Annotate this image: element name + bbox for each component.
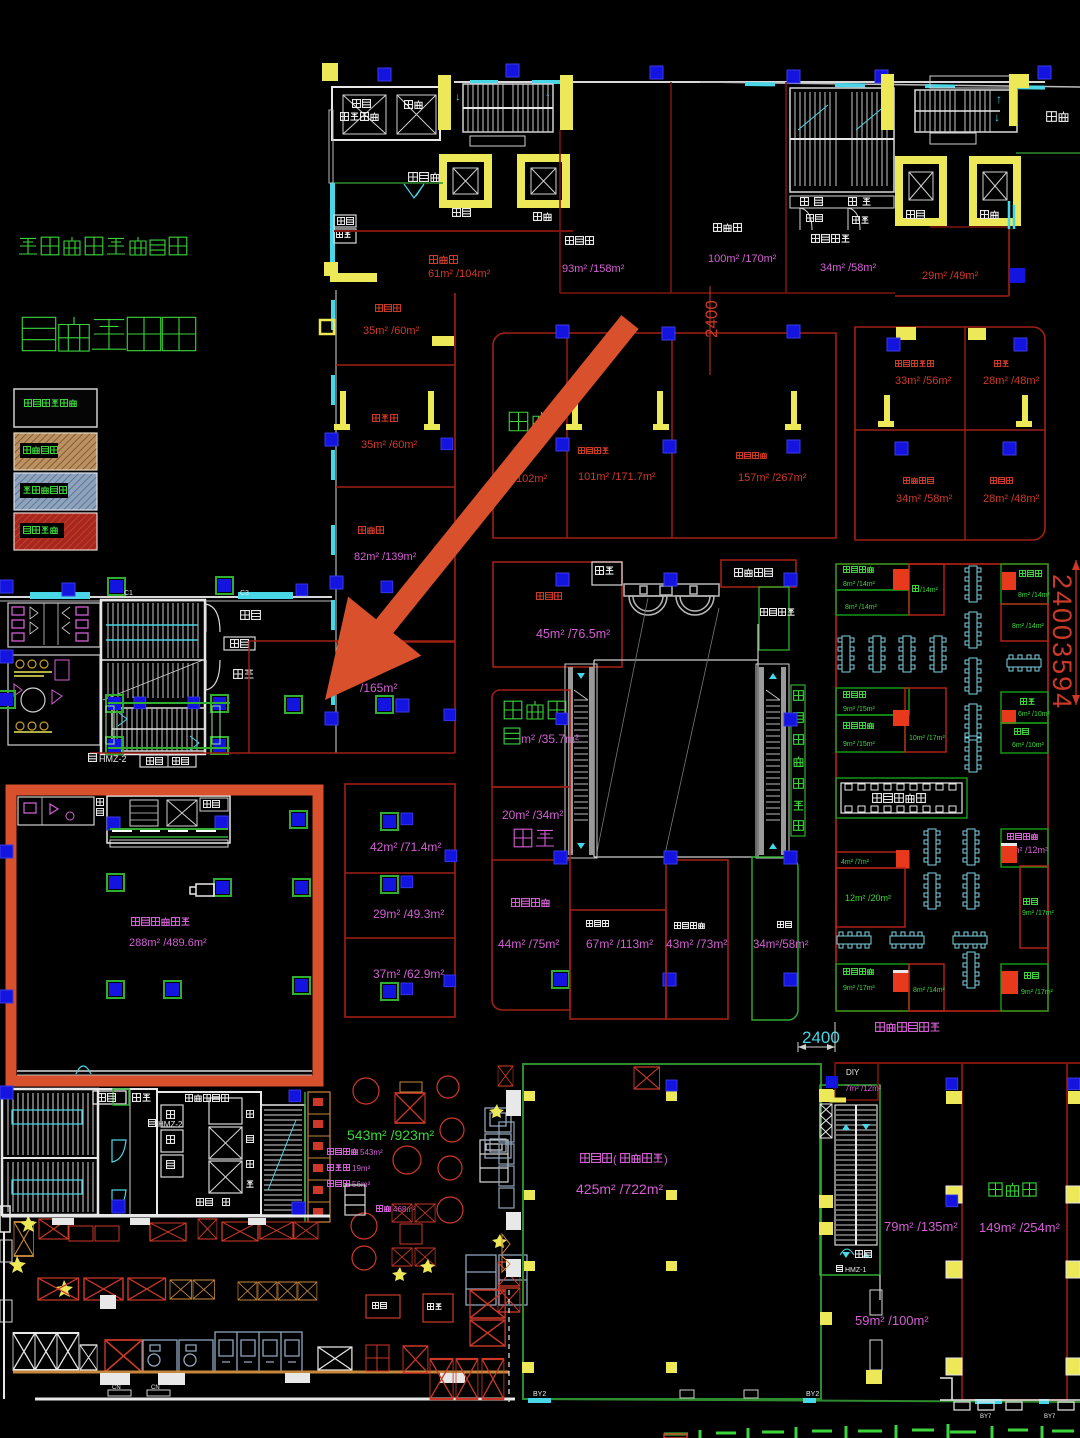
- svg-text:34m² /58m²: 34m² /58m²: [820, 262, 877, 274]
- svg-text:↑: ↑: [996, 92, 1002, 106]
- svg-text:6m² /10m²: 6m² /10m²: [1018, 711, 1051, 718]
- svg-text:9m² /17m²: 9m² /17m²: [1021, 989, 1054, 996]
- svg-text:24003594: 24003594: [1047, 574, 1077, 710]
- svg-text:42m² /71.4m²: 42m² /71.4m²: [370, 840, 441, 854]
- svg-text:HMZ-2: HMZ-2: [158, 1120, 183, 1129]
- svg-text:100m² /170m²: 100m² /170m²: [708, 253, 777, 265]
- svg-text:67m² /113m²: 67m² /113m²: [586, 937, 653, 951]
- svg-text:288m² /489.6m²: 288m² /489.6m²: [129, 937, 207, 949]
- svg-text:8m² /14m²: 8m² /14m²: [913, 987, 946, 994]
- svg-text:DIY: DIY: [846, 1068, 860, 1077]
- svg-text:8m² /14m²: 8m² /14m²: [1018, 592, 1051, 599]
- svg-text:61m² /104m²: 61m² /104m²: [428, 268, 491, 280]
- svg-text:28m² /48m²: 28m² /48m²: [983, 493, 1040, 505]
- svg-text:/165m²: /165m²: [360, 681, 397, 695]
- svg-text:HMZ-2: HMZ-2: [99, 754, 127, 764]
- svg-text:↓: ↓: [994, 110, 1000, 124]
- svg-text:BY2: BY2: [533, 1391, 546, 1398]
- svg-text:4m² /7m²: 4m² /7m²: [841, 859, 870, 866]
- svg-text:2400: 2400: [702, 300, 721, 338]
- svg-text:37m² /62.9m²: 37m² /62.9m²: [373, 967, 444, 981]
- svg-text:157m² /267m²: 157m² /267m²: [738, 472, 807, 484]
- svg-text:543m²: 543m²: [360, 1148, 383, 1157]
- svg-text:8m² /14m²: 8m² /14m²: [1012, 623, 1045, 630]
- svg-text:59m² /100m²: 59m² /100m²: [855, 1313, 929, 1328]
- svg-text:28m² /48m²: 28m² /48m²: [983, 375, 1040, 387]
- svg-text:↑: ↑: [545, 91, 551, 103]
- svg-text:35m² /60m²: 35m² /60m²: [363, 325, 420, 337]
- svg-text:): ): [664, 1154, 668, 1166]
- svg-text:149m² /254m²: 149m² /254m²: [979, 1220, 1061, 1235]
- svg-text:45m² /76.5m²: 45m² /76.5m²: [536, 627, 610, 641]
- svg-text:BY2: BY2: [806, 1391, 819, 1398]
- svg-text:101m² /171.7m²: 101m² /171.7m²: [578, 471, 656, 483]
- svg-text:35m² /60m²: 35m² /60m²: [361, 439, 418, 451]
- svg-text:↓: ↓: [455, 91, 461, 103]
- svg-text:34m² /58m²: 34m² /58m²: [896, 493, 953, 505]
- svg-text:8m² /14m²: 8m² /14m²: [845, 604, 878, 611]
- svg-text:CN: CN: [112, 1385, 121, 1391]
- svg-text:C3: C3: [240, 590, 249, 597]
- svg-text:468m²: 468m²: [393, 1205, 416, 1214]
- svg-text:43m² /73m²: 43m² /73m²: [666, 937, 727, 951]
- svg-text:/14m²: /14m²: [920, 587, 939, 594]
- svg-text:425m² /722m²: 425m² /722m²: [576, 1181, 663, 1197]
- svg-text:m² /35.7m²: m² /35.7m²: [521, 732, 579, 746]
- svg-text:34m²/58m²: 34m²/58m²: [753, 939, 809, 951]
- svg-text:79m² /135m²: 79m² /135m²: [884, 1219, 958, 1234]
- svg-text:BY7: BY7: [1044, 1414, 1056, 1420]
- svg-text:9m² /17m²: 9m² /17m²: [1022, 910, 1055, 917]
- svg-text:8m² /14m²: 8m² /14m²: [843, 581, 876, 588]
- svg-text:29m² /49m²: 29m² /49m²: [922, 270, 979, 282]
- svg-text:BY7: BY7: [980, 1414, 992, 1420]
- svg-text:12m² /20m²: 12m² /20m²: [845, 893, 891, 903]
- svg-text:HMZ-1: HMZ-1: [845, 1267, 866, 1274]
- svg-text:9m² /15m²: 9m² /15m²: [843, 741, 876, 748]
- svg-text:543m² /923m²: 543m² /923m²: [347, 1127, 434, 1143]
- svg-text:93m² /158m²: 93m² /158m²: [562, 263, 625, 275]
- svg-text:9m² /17m²: 9m² /17m²: [843, 985, 876, 992]
- svg-text:19m²: 19m²: [352, 1164, 371, 1173]
- svg-text:6m² /10m²: 6m² /10m²: [1012, 742, 1045, 749]
- svg-text:2400: 2400: [802, 1028, 840, 1047]
- svg-text:7m² /12m²: 7m² /12m²: [845, 1084, 882, 1093]
- svg-text:82m² /139m²: 82m² /139m²: [354, 551, 417, 563]
- svg-text:(: (: [613, 1154, 617, 1166]
- svg-text:44m² /75m²: 44m² /75m²: [498, 937, 559, 951]
- svg-text:20m² /34m²: 20m² /34m²: [502, 808, 563, 822]
- svg-text:C1: C1: [124, 590, 133, 597]
- svg-text:29m² /49.3m²: 29m² /49.3m²: [373, 907, 444, 921]
- svg-text:9m² /15m²: 9m² /15m²: [843, 706, 876, 713]
- svg-text:33m² /56m²: 33m² /56m²: [895, 375, 952, 387]
- svg-text:CN: CN: [151, 1385, 160, 1391]
- svg-text:10m² /17m²: 10m² /17m²: [909, 735, 945, 742]
